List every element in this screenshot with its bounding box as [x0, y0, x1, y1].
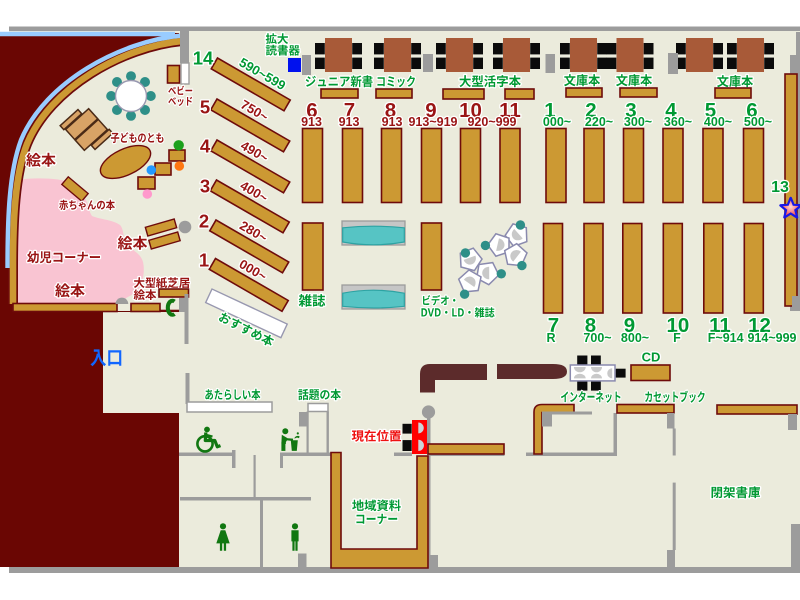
svg-text:F: F — [673, 331, 681, 345]
svg-text:000~: 000~ — [543, 115, 571, 129]
svg-text:400~: 400~ — [704, 115, 732, 129]
svg-text:14: 14 — [193, 48, 214, 69]
svg-text:3: 3 — [200, 176, 210, 197]
svg-text:800~: 800~ — [621, 331, 649, 345]
svg-text:220~: 220~ — [585, 115, 613, 129]
svg-text:4: 4 — [200, 136, 211, 157]
svg-text:913: 913 — [339, 115, 360, 129]
svg-text:CD: CD — [642, 350, 661, 365]
svg-text:360~: 360~ — [664, 115, 692, 129]
svg-text:914~999: 914~999 — [747, 331, 796, 345]
svg-text:F~914: F~914 — [708, 331, 744, 345]
svg-text:913: 913 — [382, 115, 403, 129]
svg-text:920~999: 920~999 — [467, 115, 516, 129]
svg-text:1: 1 — [199, 250, 209, 271]
svg-text:913~919: 913~919 — [408, 115, 457, 129]
svg-text:500~: 500~ — [744, 115, 772, 129]
svg-text:2: 2 — [199, 211, 209, 232]
svg-text:5: 5 — [200, 97, 210, 118]
svg-text:13: 13 — [771, 179, 789, 196]
svg-text:R: R — [546, 331, 555, 345]
svg-text:913: 913 — [301, 115, 322, 129]
svg-text:700~: 700~ — [583, 331, 611, 345]
svg-text:300~: 300~ — [624, 115, 652, 129]
